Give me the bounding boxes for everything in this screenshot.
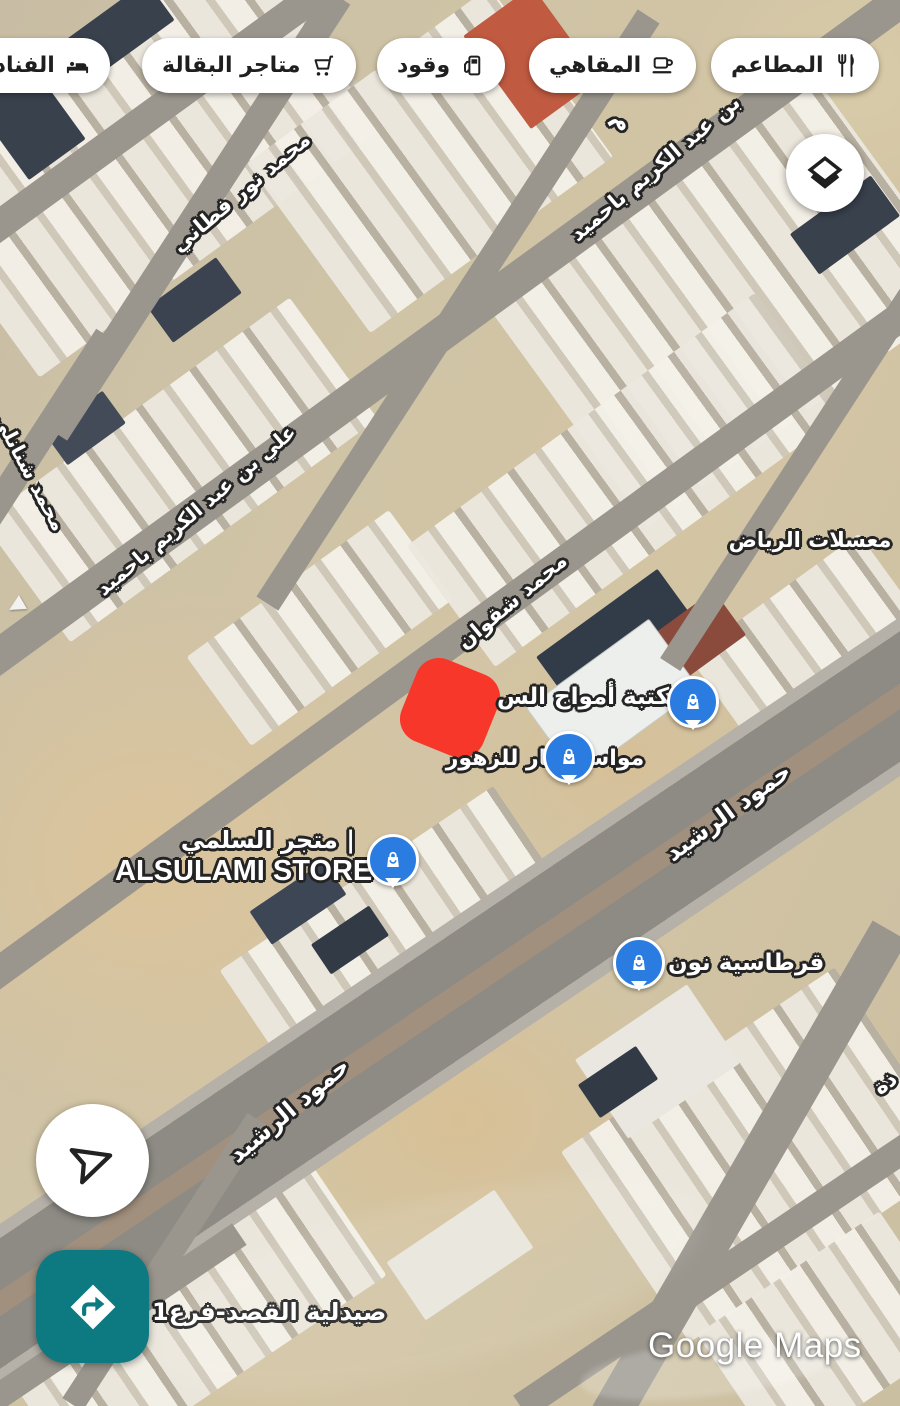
utensils-icon	[834, 53, 859, 78]
chip-hotels-label: الفنادق	[0, 53, 55, 78]
google-maps-satellite-view[interactable]: محمد نور فطاني بن عبد الكريم باحميد علي …	[0, 0, 900, 1406]
google-maps-watermark: Google Maps	[648, 1326, 862, 1366]
street-label-muassalat-alriyadh: معسلات الرياض	[729, 528, 892, 552]
chip-cafes[interactable]: المقاهي	[529, 38, 696, 93]
chip-cafes-label: المقاهي	[549, 53, 641, 78]
place-label-alsulami-arabic: متجر السلمي |	[115, 826, 355, 854]
directions-icon	[65, 1279, 121, 1335]
chip-grocery[interactable]: متاجر البقالة	[142, 38, 356, 93]
shopping-bag-icon	[626, 950, 652, 976]
bed-icon	[65, 53, 90, 78]
navigation-arrow-icon	[58, 1126, 126, 1194]
chip-hotels[interactable]: الفنادق	[0, 38, 110, 93]
shopping-cart-icon	[311, 53, 336, 78]
gas-pump-icon	[460, 53, 485, 78]
shopping-bag-pin-mawasim[interactable]	[543, 731, 595, 783]
shopping-bag-icon	[380, 847, 406, 873]
my-location-button[interactable]	[36, 1104, 149, 1217]
chip-fuel[interactable]: وقود	[377, 38, 505, 93]
place-label-alsulami-english: ALSULAMI STORE	[115, 855, 355, 888]
shopping-bag-pin-alsulami[interactable]	[367, 834, 419, 886]
chip-restaurants[interactable]: المطاعم	[711, 38, 879, 93]
place-label-amwaj-library[interactable]: مكتبة أمواج الس	[497, 684, 683, 710]
shopping-bag-icon	[556, 744, 582, 770]
chip-fuel-label: وقود	[397, 53, 450, 78]
chip-restaurants-label: المطاعم	[731, 53, 824, 78]
place-label-noon-stationery[interactable]: قرطاسية نون	[668, 950, 824, 976]
place-label-alsulami-store[interactable]: متجر السلمي | ALSULAMI STORE	[115, 826, 355, 888]
coffee-cup-icon	[651, 53, 676, 78]
chip-grocery-label: متاجر البقالة	[162, 53, 301, 78]
shopping-bag-pin-amwaj[interactable]	[667, 676, 719, 728]
shopping-bag-pin-noon[interactable]	[613, 937, 665, 989]
layers-button[interactable]	[786, 134, 864, 212]
directions-button[interactable]	[36, 1250, 149, 1363]
shopping-bag-icon	[680, 689, 706, 715]
layers-icon	[804, 152, 846, 194]
